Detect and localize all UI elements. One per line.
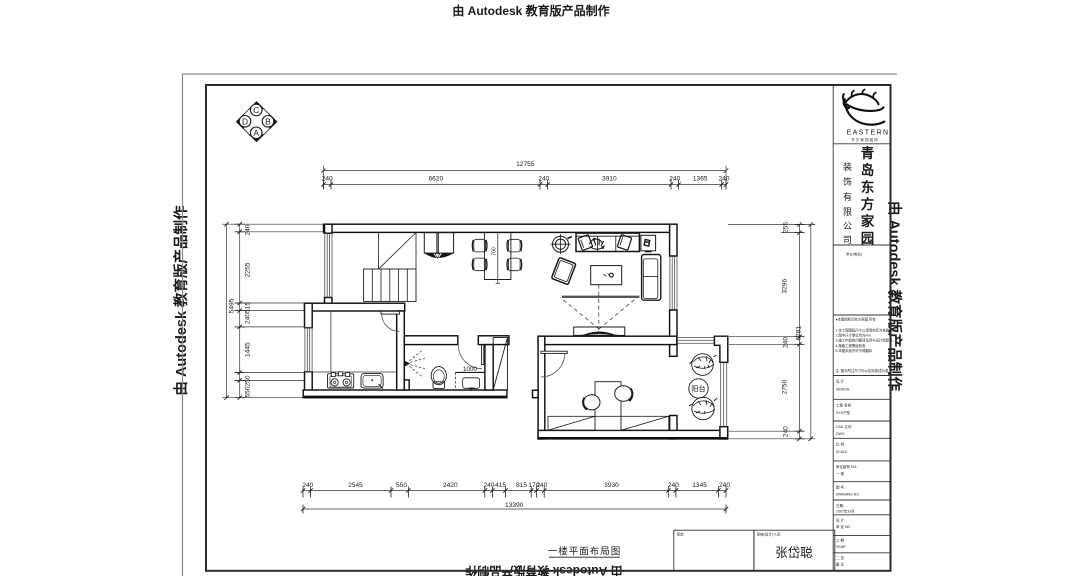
svg-text:岛: 岛: [861, 162, 875, 178]
svg-text:一楼平面布局图: 一楼平面布局图: [548, 546, 622, 558]
svg-text:515: 515: [245, 302, 252, 313]
svg-text:东: 东: [861, 179, 875, 195]
svg-text:张岱聪: 张岱聪: [775, 545, 813, 560]
svg-text:工程 名称:: 工程 名称:: [836, 403, 852, 408]
svg-text:一 楼: 一 楼: [836, 471, 844, 476]
svg-text:2007年10月: 2007年10月: [836, 509, 855, 514]
svg-text:240: 240: [783, 337, 790, 348]
svg-text:A: A: [253, 128, 259, 138]
svg-text:550: 550: [396, 482, 407, 489]
svg-text:比 例:: 比 例:: [836, 442, 845, 447]
svg-text:装: 装: [843, 161, 852, 172]
svg-text:限: 限: [843, 207, 852, 217]
svg-text:审 定 NO: 审 定 NO: [836, 524, 850, 529]
svg-text:SCALE: SCALE: [836, 450, 848, 454]
svg-text:250: 250: [245, 375, 252, 386]
svg-text:DRAWING NO.: DRAWING NO.: [836, 493, 860, 497]
svg-text:二 至:: 二 至:: [836, 556, 845, 560]
svg-text:240: 240: [668, 482, 679, 489]
svg-text:方: 方: [861, 196, 875, 212]
svg-text:240: 240: [536, 482, 547, 489]
svg-text:4.隐蔽工程需经验收,: 4.隐蔽工程需经验收,: [836, 343, 867, 348]
svg-text:设 计:: 设 计:: [836, 518, 845, 523]
svg-text:YEAR: YEAR: [836, 545, 846, 549]
svg-text:饰: 饰: [843, 176, 852, 187]
svg-text:5.本图未经许可不得翻印: 5.本图未经许可不得翻印: [836, 348, 873, 353]
svg-text:审定:: 审定:: [677, 532, 685, 537]
svg-text:园: 园: [861, 231, 875, 246]
svg-text:12755: 12755: [516, 161, 535, 168]
svg-text:415: 415: [495, 482, 506, 489]
svg-text:有: 有: [843, 191, 852, 202]
svg-text:2255: 2255: [245, 262, 252, 277]
svg-text:东 方 家 园 装 饰: 东 方 家 园 装 饰: [851, 137, 878, 142]
svg-text:2750: 2750: [782, 379, 789, 394]
svg-text:700: 700: [491, 247, 497, 256]
svg-text:DESIGN: DESIGN: [836, 388, 850, 392]
svg-text:1445: 1445: [245, 342, 252, 357]
svg-text:CAD 文件:: CAD 文件:: [836, 424, 852, 429]
svg-text:●本图版权归东方家园 所有: ●本图版权归东方家园 所有: [836, 317, 877, 322]
svg-text:240: 240: [719, 482, 730, 489]
svg-text:3910: 3910: [602, 176, 617, 183]
svg-text:240: 240: [245, 224, 252, 235]
svg-text:240: 240: [669, 176, 680, 183]
svg-text:阳台: 阳台: [691, 384, 705, 393]
svg-text:240: 240: [245, 313, 252, 324]
svg-text:240: 240: [718, 176, 729, 183]
svg-text:6620: 6620: [428, 176, 443, 183]
svg-text:由 Autodesk 教育版产品制作: 由 Autodesk 教育版产品制作: [886, 201, 904, 392]
svg-text:DWG: DWG: [836, 432, 845, 436]
svg-text:日期:: 日期:: [836, 503, 844, 508]
svg-text:6781: 6781: [795, 326, 802, 341]
svg-text:B: B: [265, 116, 271, 126]
svg-text:3930: 3930: [604, 482, 619, 489]
svg-text:由 Autodesk 教育版产品制作: 由 Autodesk 教育版产品制作: [172, 205, 190, 396]
svg-text:备 注: 备 注: [836, 562, 844, 567]
svg-text:240: 240: [483, 482, 494, 489]
svg-text:D: D: [242, 116, 248, 126]
svg-text:1345: 1345: [692, 482, 707, 489]
svg-text:公: 公: [843, 221, 852, 231]
svg-text:5495: 5495: [229, 298, 236, 313]
svg-text:图 号:: 图 号:: [836, 485, 845, 490]
svg-text:XXX户型: XXX户型: [836, 410, 851, 415]
svg-text:3.施工中如有问题请及时与设计师联系,: 3.施工中如有问题请及时与设计师联系,: [836, 338, 894, 343]
svg-text:C: C: [253, 105, 259, 115]
svg-text:甲方(电话): 甲方(电话): [846, 252, 862, 257]
svg-text:审定级别 NO.:: 审定级别 NO.:: [836, 464, 858, 469]
svg-text:工 期:: 工 期:: [836, 538, 845, 543]
svg-text:1365: 1365: [693, 176, 708, 183]
svg-text:青: 青: [861, 145, 875, 161]
svg-text:240: 240: [538, 176, 549, 183]
svg-text:司: 司: [843, 235, 852, 245]
svg-text:240: 240: [783, 426, 790, 437]
svg-text:2420: 2420: [443, 482, 458, 489]
svg-text:审核(设计)人员:: 审核(设计)人员:: [757, 532, 782, 537]
svg-text:13390: 13390: [505, 502, 524, 509]
svg-text:1000: 1000: [463, 366, 478, 373]
svg-text:240: 240: [302, 482, 313, 489]
svg-text:240: 240: [322, 176, 333, 183]
svg-text:由 Autodesk 教育版产品制作: 由 Autodesk 教育版产品制作: [452, 3, 609, 18]
svg-text:815: 815: [516, 482, 527, 489]
svg-text:3296: 3296: [782, 279, 789, 294]
svg-text:注: 图中所注尺寸均以实际放线为准: 注: 图中所注尺寸均以实际放线为准: [836, 368, 889, 373]
svg-text:EASTERN: EASTERN: [847, 130, 890, 137]
svg-text:设 计:: 设 计:: [836, 379, 845, 384]
svg-text:家: 家: [861, 213, 875, 229]
svg-text:2.图中尺寸单位均为mm: 2.图中尺寸单位均为mm: [836, 333, 872, 338]
svg-text:550: 550: [245, 386, 252, 397]
svg-text:2545: 2545: [348, 482, 363, 489]
svg-text:255: 255: [783, 222, 790, 233]
svg-text:1.本工程图纸尺寸以现场实际为准施工时: 1.本工程图纸尺寸以现场实际为准施工时: [836, 328, 897, 333]
